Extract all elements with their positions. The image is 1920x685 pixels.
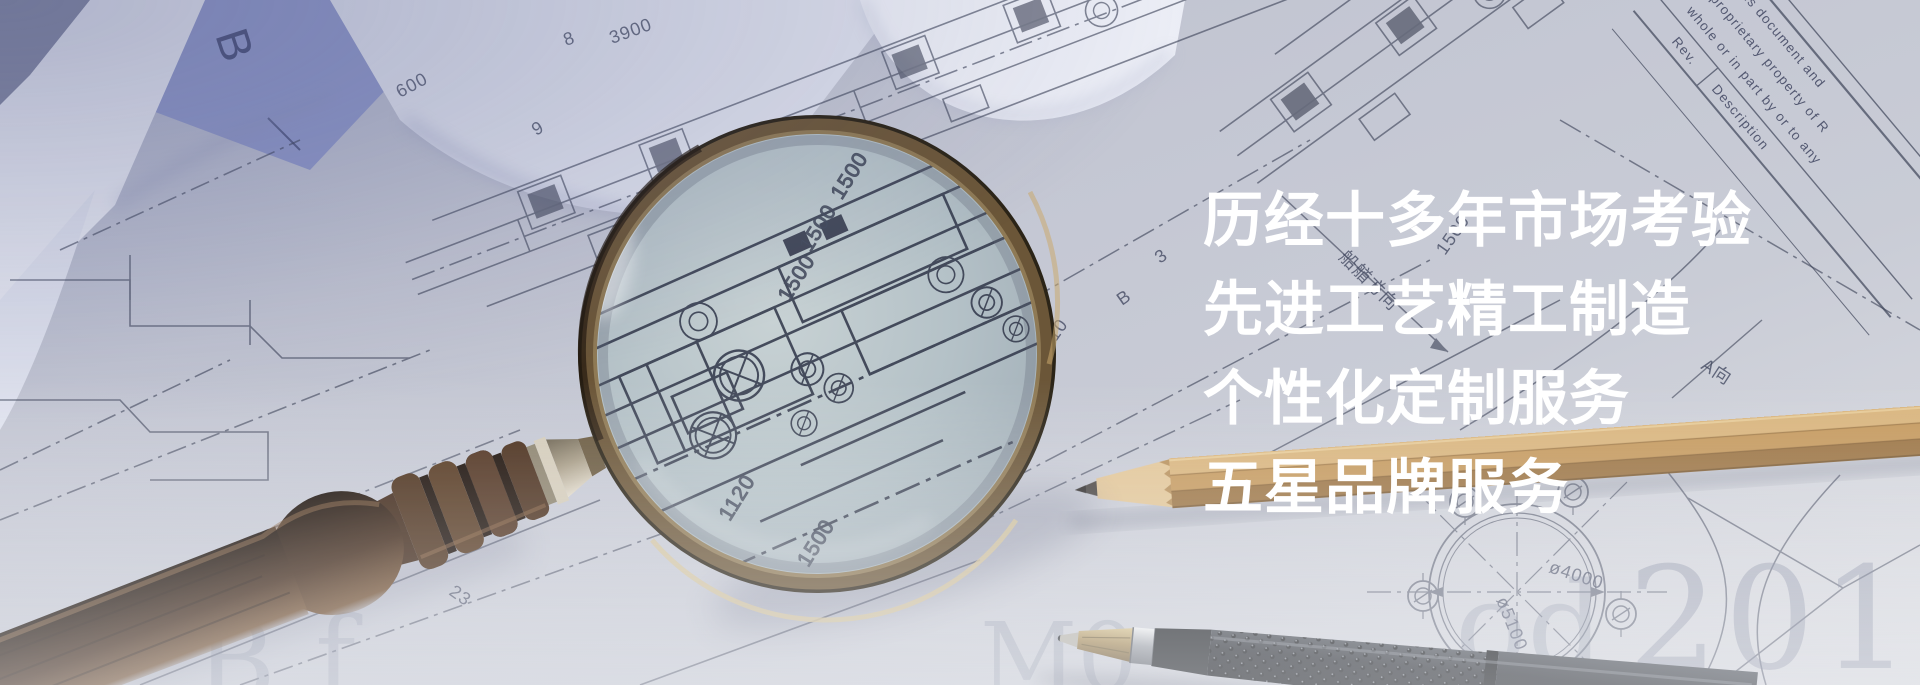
headline-line-1: 历经十多年市场考验	[1203, 176, 1752, 265]
headline-line-4: 五星品牌服务	[1203, 443, 1752, 532]
hero-headline: 历经十多年市场考验 先进工艺精工制造 个性化定制服务 五星品牌服务	[1203, 176, 1752, 532]
headline-line-3: 个性化定制服务	[1203, 354, 1752, 443]
headline-line-2: 先进工艺精工制造	[1203, 265, 1752, 354]
hero-banner: B	[0, 0, 1920, 685]
